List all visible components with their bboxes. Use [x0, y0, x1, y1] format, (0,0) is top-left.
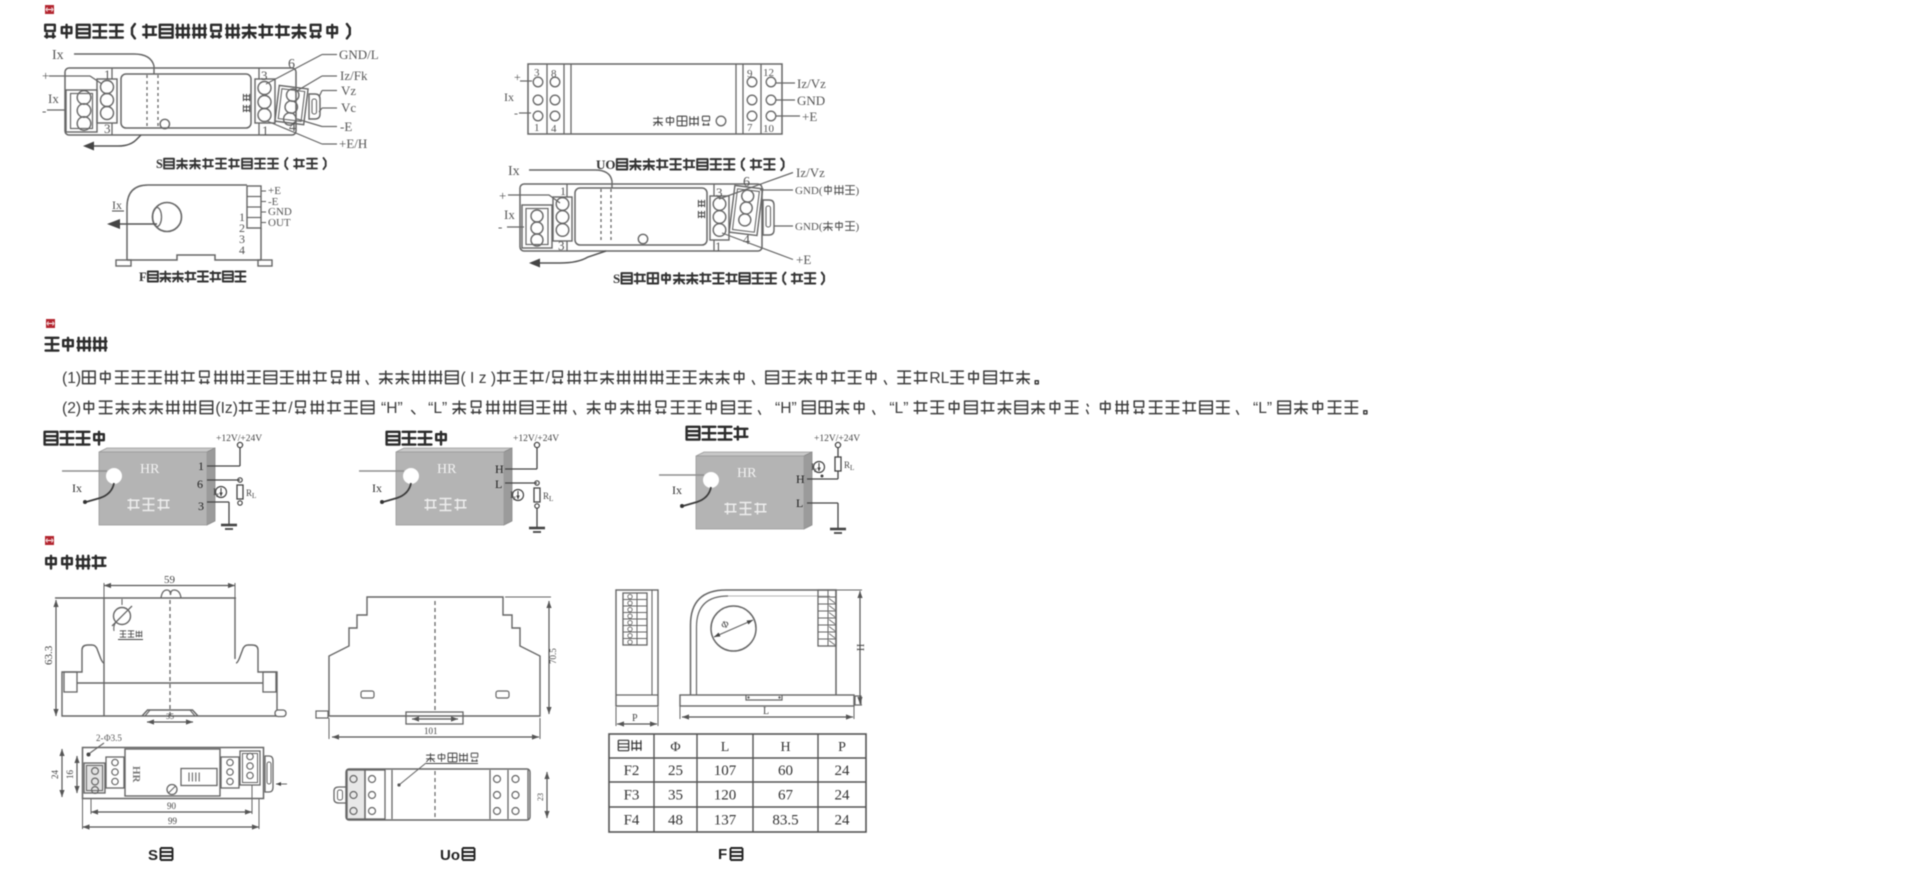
svg-text:GND(: GND(: [795, 185, 823, 197]
svg-text:Ix: Ix: [672, 483, 682, 497]
svg-text:101: 101: [424, 726, 438, 736]
svg-text:60: 60: [778, 763, 793, 779]
svg-text:-: -: [42, 103, 46, 118]
svg-text:59: 59: [164, 574, 176, 586]
svg-text:+: +: [42, 68, 49, 83]
svg-text:99: 99: [168, 816, 178, 826]
svg-text:+: +: [499, 188, 506, 203]
svg-text:-E: -E: [340, 119, 352, 134]
svg-text:/: /: [546, 370, 551, 387]
svg-text:L: L: [796, 496, 803, 510]
svg-text:H: H: [780, 740, 790, 755]
svg-text:+12V/+24V: +12V/+24V: [814, 434, 860, 444]
svg-text:L: L: [850, 464, 854, 472]
svg-text:S: S: [156, 157, 163, 171]
svg-text:3: 3: [104, 121, 111, 136]
svg-text:67: 67: [778, 788, 794, 804]
svg-text:+E/H: +E/H: [339, 136, 367, 151]
svg-text:Ix: Ix: [372, 481, 382, 495]
svg-text:OUT: OUT: [268, 217, 291, 229]
svg-text:(2): (2): [62, 400, 81, 417]
svg-text:z: z: [216, 491, 219, 499]
svg-text:+E: +E: [802, 109, 817, 124]
svg-text:F: F: [139, 270, 147, 284]
svg-text:Ix: Ix: [112, 198, 122, 212]
svg-text:4: 4: [239, 243, 245, 257]
svg-text:L: L: [721, 740, 730, 755]
svg-text:+: +: [514, 70, 521, 84]
svg-text:H: H: [495, 462, 504, 476]
svg-text:GND/L: GND/L: [339, 47, 379, 62]
svg-text:24: 24: [835, 788, 851, 804]
svg-text:-: -: [498, 219, 502, 234]
svg-text:24: 24: [50, 770, 60, 780]
svg-text:1: 1: [560, 184, 566, 198]
svg-text:Ix: Ix: [52, 48, 64, 63]
svg-text:“L”: “L”: [885, 400, 913, 417]
svg-text:“H”: “H”: [771, 400, 801, 417]
svg-text:( I z ): ( I z ): [461, 370, 497, 387]
svg-text:24: 24: [835, 813, 851, 829]
svg-text:48: 48: [668, 813, 683, 829]
svg-text:Vc: Vc: [341, 100, 356, 115]
svg-text:120: 120: [714, 788, 737, 804]
svg-text:(1): (1): [62, 370, 81, 387]
svg-text:25: 25: [668, 763, 683, 779]
svg-text:137: 137: [714, 813, 737, 829]
svg-text:“L”: “L”: [1249, 400, 1277, 417]
svg-text:83.5: 83.5: [772, 813, 798, 829]
svg-text:Iz/Vz: Iz/Vz: [797, 76, 826, 91]
svg-text:L: L: [495, 477, 502, 491]
svg-text:RL: RL: [929, 370, 949, 387]
svg-text:GND(: GND(: [795, 221, 823, 233]
svg-text:4: 4: [551, 123, 557, 135]
svg-text:Ix: Ix: [504, 90, 514, 104]
svg-text:P: P: [632, 713, 638, 724]
svg-text:Ix: Ix: [72, 481, 82, 495]
svg-text:6: 6: [197, 477, 203, 491]
svg-text:3: 3: [261, 68, 268, 83]
svg-text:F3: F3: [624, 788, 640, 804]
svg-text:“H”: “H”: [377, 400, 407, 417]
svg-text:35: 35: [166, 712, 174, 721]
svg-text:12: 12: [763, 67, 774, 79]
svg-text:): ): [856, 221, 860, 233]
svg-text:3: 3: [534, 67, 540, 79]
svg-text:1: 1: [104, 67, 111, 82]
svg-text:8: 8: [551, 68, 557, 80]
svg-text:z: z: [513, 494, 516, 502]
svg-text:+12V/+24V: +12V/+24V: [513, 434, 559, 444]
svg-text:F4: F4: [624, 813, 640, 829]
svg-text:L: L: [763, 706, 769, 717]
svg-text:+12V/+24V: +12V/+24V: [216, 434, 262, 444]
svg-text:2-: 2-: [96, 733, 104, 743]
svg-text:HR: HR: [140, 462, 160, 477]
svg-text:90: 90: [167, 801, 177, 811]
svg-text:Φ3.5: Φ3.5: [104, 733, 122, 743]
svg-text:Iz/Vz: Iz/Vz: [796, 165, 825, 180]
svg-text:63.3: 63.3: [43, 645, 55, 665]
svg-text:L: L: [549, 495, 553, 503]
svg-text:Iz/Fk: Iz/Fk: [340, 68, 368, 83]
svg-text:1: 1: [262, 123, 269, 138]
svg-text:Uo: Uo: [440, 847, 460, 864]
svg-text:“L”: “L”: [424, 400, 452, 417]
svg-text:/: /: [288, 400, 293, 417]
svg-text:S: S: [613, 271, 620, 286]
svg-text:35: 35: [668, 788, 683, 804]
svg-text:+E: +E: [796, 252, 811, 267]
svg-text:107: 107: [714, 763, 737, 779]
svg-text:1: 1: [715, 239, 722, 254]
svg-text:Ix: Ix: [504, 207, 515, 222]
svg-text:3: 3: [558, 238, 565, 253]
svg-text:70.5: 70.5: [548, 648, 558, 664]
svg-text:23: 23: [536, 793, 545, 801]
svg-text:GND: GND: [797, 93, 825, 108]
svg-text:HR: HR: [130, 766, 142, 784]
svg-text:L: L: [252, 492, 256, 500]
svg-text:F2: F2: [624, 763, 640, 779]
svg-text:): ): [856, 185, 860, 197]
svg-text:4: 4: [743, 233, 750, 248]
svg-text:H: H: [796, 472, 805, 486]
svg-text:10: 10: [763, 123, 775, 135]
svg-text:1: 1: [198, 459, 204, 473]
svg-text:HR: HR: [737, 466, 757, 481]
svg-text:Vz: Vz: [341, 83, 356, 98]
svg-text:S: S: [148, 847, 158, 864]
svg-text:H: H: [856, 644, 867, 651]
svg-text:Ix: Ix: [508, 164, 520, 179]
svg-text:F: F: [718, 846, 727, 863]
svg-text:P: P: [838, 740, 846, 755]
svg-text:Ix: Ix: [48, 91, 59, 106]
svg-text:1: 1: [534, 122, 540, 134]
svg-text:-: -: [514, 106, 518, 120]
svg-text:z: z: [814, 466, 817, 474]
svg-text:(Iz): (Iz): [215, 400, 238, 417]
svg-text:9: 9: [747, 68, 753, 80]
svg-text:Φ: Φ: [670, 740, 680, 755]
svg-text:7: 7: [747, 122, 753, 134]
svg-text:3: 3: [198, 499, 204, 513]
svg-text:HR: HR: [437, 462, 457, 477]
svg-text:24: 24: [835, 763, 851, 779]
svg-text:16: 16: [65, 770, 75, 780]
